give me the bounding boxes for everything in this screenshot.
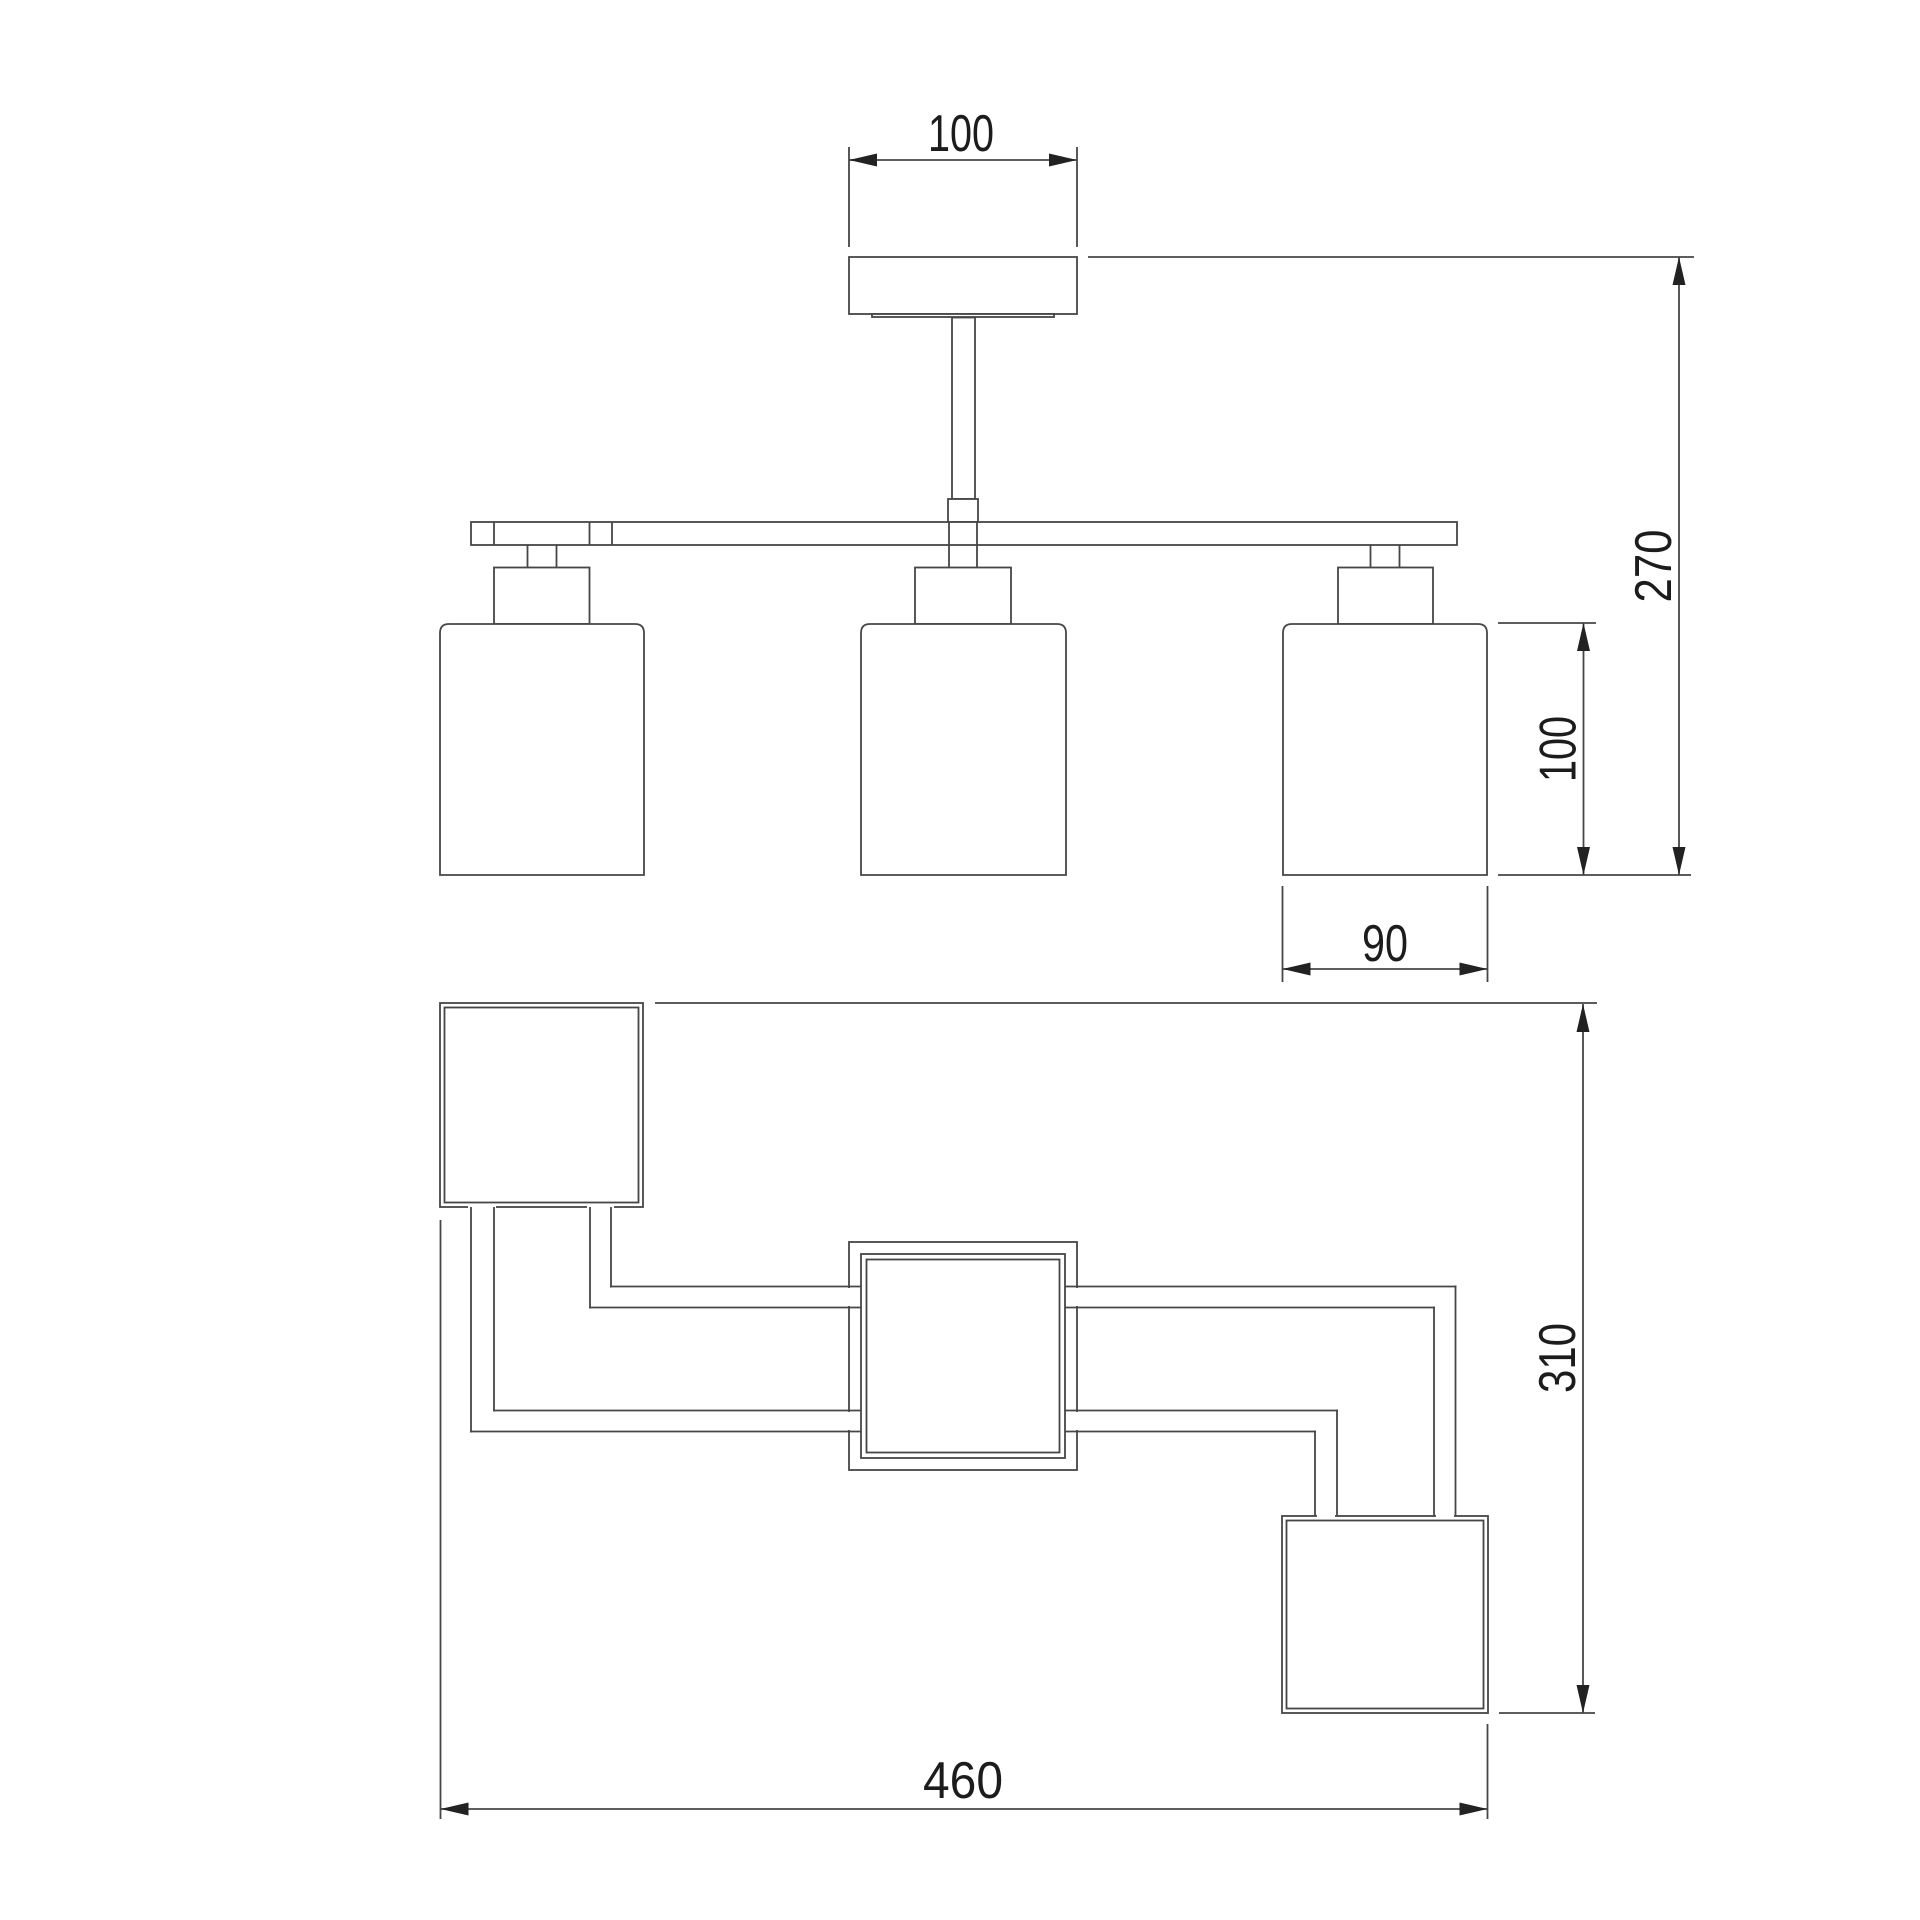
svg-text:270: 270 [1625, 530, 1683, 603]
svg-text:310: 310 [1529, 1323, 1587, 1393]
svg-text:460: 460 [923, 1752, 1003, 1810]
svg-text:100: 100 [1530, 716, 1588, 782]
svg-text:100: 100 [928, 105, 994, 163]
svg-text:90: 90 [1362, 915, 1408, 973]
